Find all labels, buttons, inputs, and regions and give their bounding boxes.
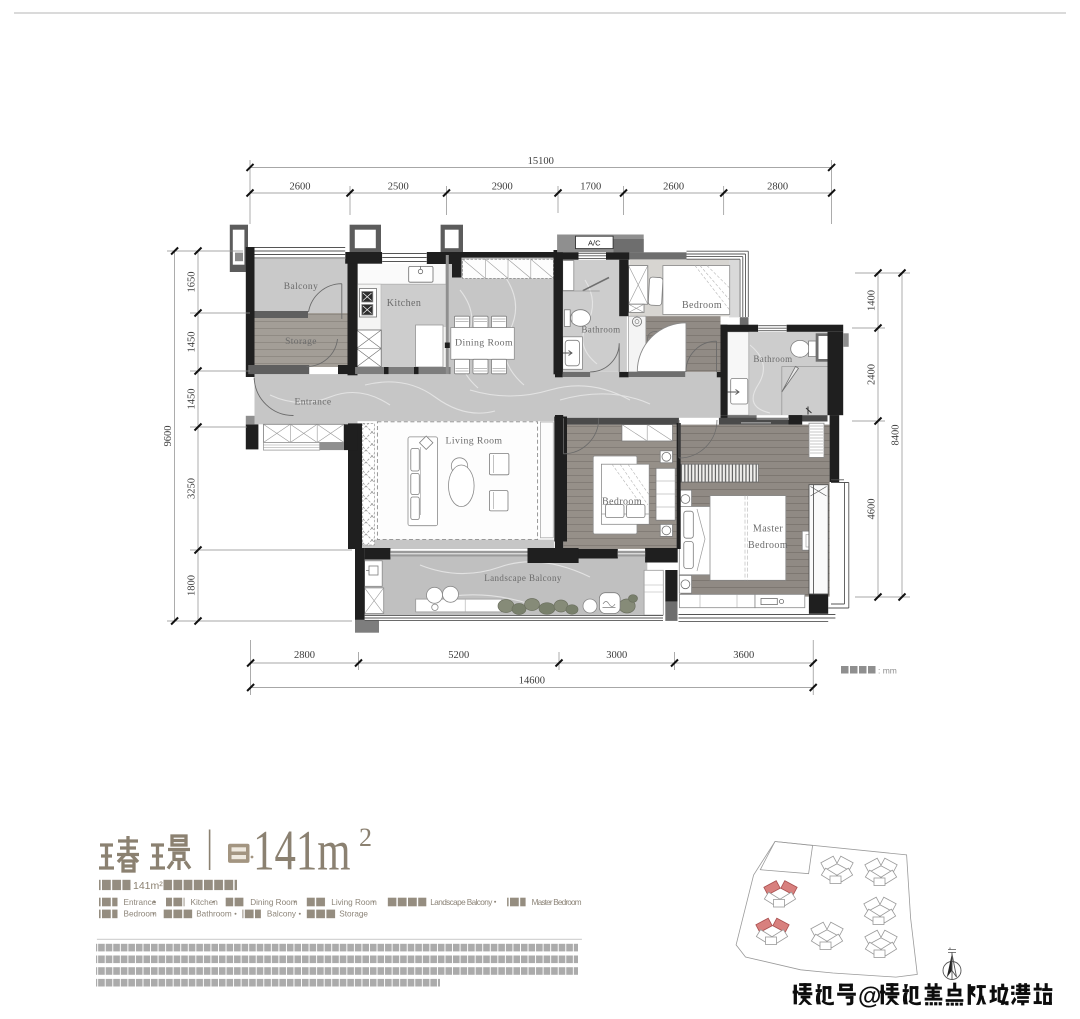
svg-text:Bathroom: Bathroom	[196, 910, 232, 919]
svg-text:Living Room: Living Room	[331, 898, 377, 907]
svg-text:Storage: Storage	[339, 910, 368, 919]
svg-text:Balcony: Balcony	[267, 910, 297, 919]
svg-text:141m: 141m	[253, 819, 350, 882]
svg-text:141m²: 141m²	[133, 880, 163, 892]
svg-text:Dining Room: Dining Room	[250, 898, 298, 907]
svg-text:Master Bedroom: Master Bedroom	[532, 898, 582, 907]
svg-text:Landscape Balcony: Landscape Balcony	[430, 898, 493, 907]
svg-text:2: 2	[359, 823, 372, 852]
svg-text:Bedroom: Bedroom	[124, 910, 157, 919]
svg-text:Entrance: Entrance	[124, 898, 157, 907]
